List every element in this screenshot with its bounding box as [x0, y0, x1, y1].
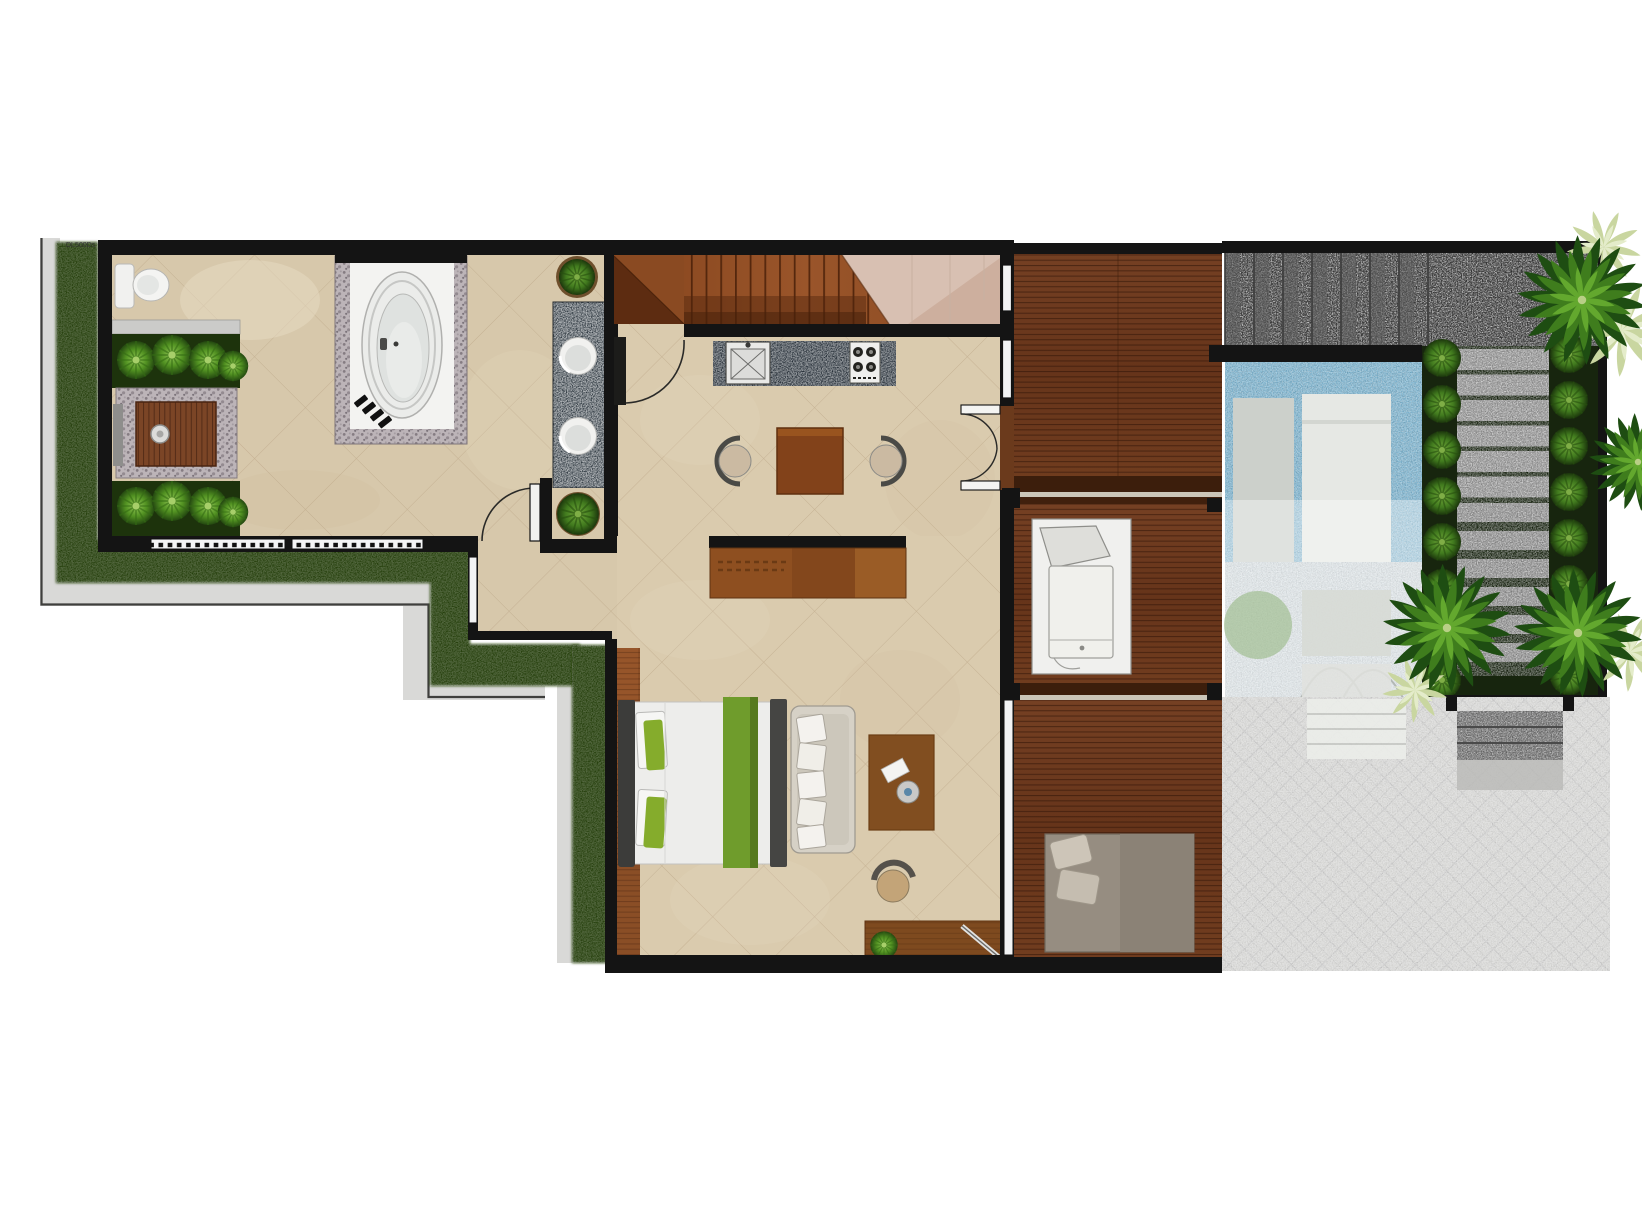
- svg-text:DL500Ds: DL500Ds: [66, 242, 96, 249]
